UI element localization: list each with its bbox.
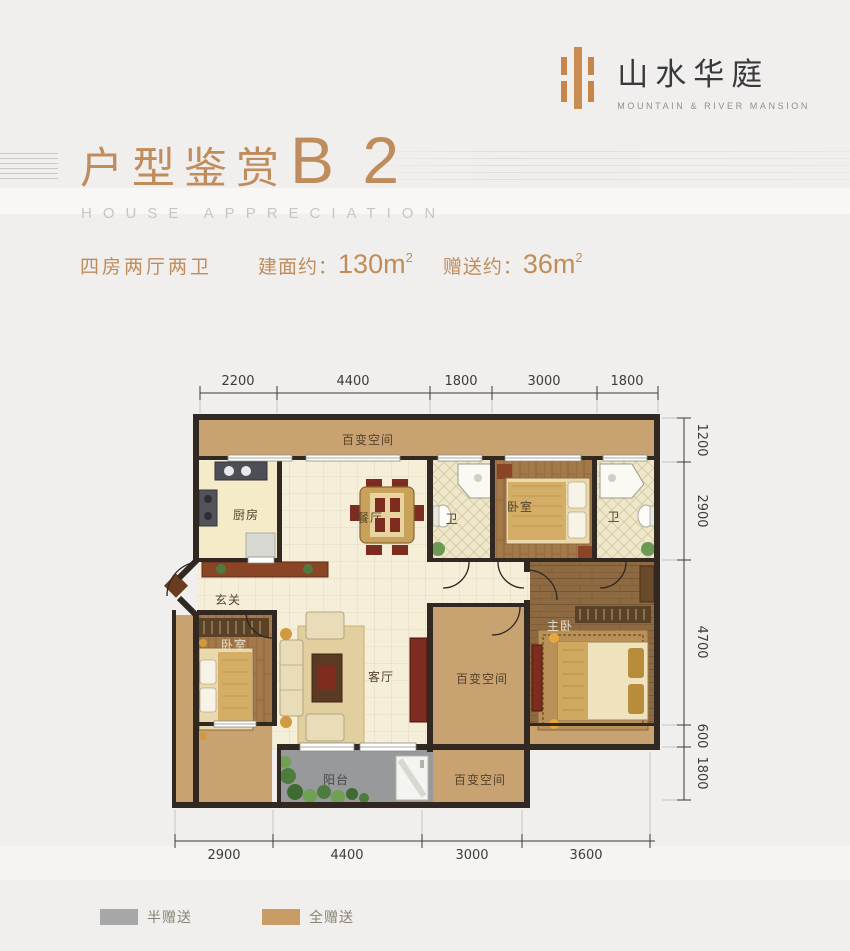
dim-right-4: 600	[694, 724, 709, 749]
dim-top-4: 3000	[527, 374, 560, 389]
dim-bottom-4: 3600	[569, 848, 602, 863]
brand-logo-icon	[553, 45, 603, 115]
spec-gift-label: 赠送约：	[443, 252, 523, 279]
spec-area-label: 建面约：	[258, 252, 338, 279]
spec-area-sup: 2	[406, 250, 413, 265]
legend-label-full-gift: 全赠送	[309, 907, 354, 927]
brand-name: 山水华庭	[617, 49, 810, 94]
dim-top-1: 2200	[221, 374, 254, 389]
room-label-bath-right: 卫	[607, 510, 620, 524]
spec-gift-value: 36m	[523, 249, 576, 280]
room-label-kitchen: 厨房	[233, 507, 259, 522]
legend-swatch-half-gift	[100, 909, 138, 925]
dim-right-5: 1800	[694, 756, 709, 789]
dim-bottom-1: 2900	[207, 848, 240, 863]
room-label-living: 客厅	[368, 669, 394, 684]
dim-bottom-2: 4400	[330, 848, 363, 863]
dim-top-3: 1800	[444, 374, 477, 389]
dim-right-2: 2900	[694, 494, 709, 527]
brand-tagline: MOUNTAIN & RIVER MANSION	[617, 101, 810, 111]
floorplan: 百变空间 厨房 餐厅 卫 卧室 卫 玄关 卧室 客厅 百变空间 主卧 阳台 百变…	[140, 350, 720, 870]
dim-right-3: 4700	[694, 625, 709, 658]
spec-layout: 四房两厅两卫	[80, 252, 212, 279]
room-label-bedroom-left: 卧室	[221, 637, 247, 652]
title-cn: 户型鉴赏	[80, 134, 288, 196]
legend-label-half-gift: 半赠送	[147, 907, 192, 927]
unit-specs: 四房两厅两卫 建面约： 130m 2 赠送约： 36m 2	[80, 249, 583, 280]
room-label-flex-mid: 百变空间	[456, 671, 508, 686]
page-title: 户型鉴赏 B 2	[80, 122, 404, 198]
spec-gift-sup: 2	[575, 250, 582, 265]
legend: 半赠送 全赠送	[100, 907, 354, 927]
room-label-master: 主卧	[547, 619, 573, 633]
decor-lines-right	[345, 151, 850, 186]
spec-area-value: 130m	[338, 249, 406, 280]
dim-bottom-3: 3000	[455, 848, 488, 863]
room-label-balcony: 阳台	[323, 772, 349, 787]
legend-swatch-full-gift	[262, 909, 300, 925]
decor-lines-left	[0, 153, 58, 183]
room-label-flex-top: 百变空间	[342, 432, 394, 447]
room-label-flex-bottom: 百变空间	[454, 772, 506, 787]
dim-top-2: 4400	[336, 374, 369, 389]
brand-logo: 山水华庭 MOUNTAIN & RIVER MANSION	[553, 45, 810, 115]
dim-top-5: 1800	[610, 374, 643, 389]
room-label-dining: 餐厅	[357, 510, 383, 525]
title-unit-code: B 2	[290, 122, 404, 198]
room-label-bath-left: 卫	[445, 512, 458, 526]
title-en: HOUSE APPRECIATION	[81, 205, 446, 222]
room-label-bedroom-top: 卧室	[507, 499, 533, 514]
room-label-foyer: 玄关	[215, 592, 241, 607]
dim-right-1: 1200	[694, 423, 709, 456]
